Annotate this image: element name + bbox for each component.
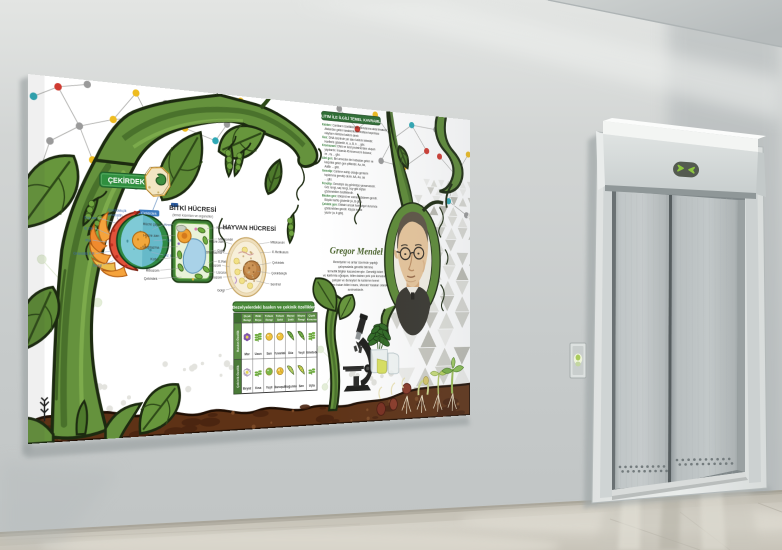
svg-text:Golgi: Golgi [217,288,225,293]
svg-text:Mor: Mor [244,353,250,357]
svg-text:Kısa: Kısa [255,386,262,390]
svg-text:Düz: Düz [288,351,293,355]
svg-text:Granüllü ER: Granüllü ER [73,251,94,256]
svg-text:Sarı: Sarı [266,352,271,356]
svg-text:Uzun: Uzun [255,352,262,356]
svg-text:Rengi: Rengi [266,318,273,322]
svg-text:İç zar: İç zar [84,226,94,231]
svg-text:Çekinik Özellik: Çekinik Özellik [236,364,240,388]
svg-text:Hücre zarı: Hücre zarı [143,233,159,238]
svg-text:Rengi: Rengi [243,318,250,322]
svg-text:Yeşil: Yeşil [298,351,304,355]
svg-text:Sitoplazma: Sitoplazma [142,245,160,250]
svg-text:Lizozom: Lizozom [209,263,221,268]
svg-text:Por: Por [85,238,92,243]
svg-text:Ribozom: Ribozom [146,268,160,273]
svg-text:E.Retikulum: E.Retikulum [272,250,288,255]
svg-text:Kromatin: Kromatin [108,212,122,217]
svg-text:Dış zar: Dış zar [84,215,97,220]
svg-text:Beyaz: Beyaz [243,387,252,391]
svg-text:Boğumlu: Boğumlu [285,385,297,389]
svg-text:Uçta: Uçta [309,384,316,388]
svg-text:Şekli: Şekli [277,318,283,322]
svg-text:Ribozom: Ribozom [209,275,222,280]
svg-text:Sitoplazma: Sitoplazma [206,250,223,255]
svg-text:Konumu: Konumu [307,318,317,322]
svg-text:Gövdede: Gövdede [306,351,318,355]
svg-text:Çekirdek: Çekirdek [144,276,158,281]
svg-text:Rengi: Rengi [298,318,305,321]
svg-text:Çekirdekçik: Çekirdekçik [271,271,287,276]
svg-text:Çekirdek: Çekirdek [272,260,284,265]
svg-text:Yuvarlak: Yuvarlak [274,352,286,356]
svg-text:Sentriol: Sentriol [270,282,280,286]
svg-text:Şekli: Şekli [288,318,294,322]
svg-text:Hücre çeperi: Hücre çeperi [143,221,163,226]
svg-text:Boyu: Boyu [255,318,261,322]
svg-text:Hücre zarı: Hücre zarı [209,239,224,244]
svg-text:Baskın Özellik: Baskın Özellik [236,329,240,352]
svg-text:Koful: Koful [150,257,158,262]
svg-text:Yeşil: Yeşil [266,386,273,390]
svg-text:Sarı: Sarı [299,384,304,388]
svg-text:Bezelyelerdeki baskın ve çekin: Bezelyelerdeki baskın ve çekinik özellik… [232,305,315,311]
svg-text:Mitokondri: Mitokondri [270,240,284,245]
svg-text:Golgi: Golgi [93,263,102,268]
